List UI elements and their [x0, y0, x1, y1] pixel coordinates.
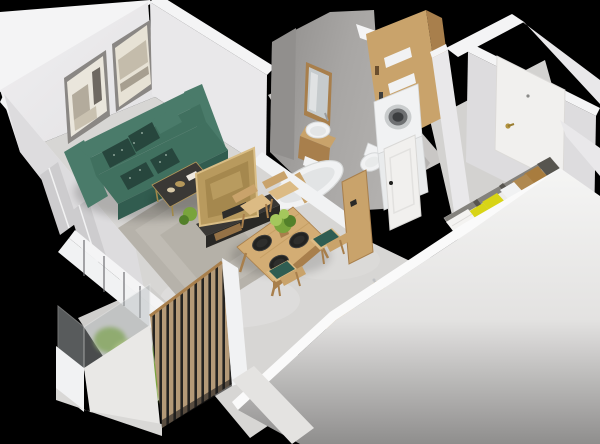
decor-bowl — [167, 188, 175, 193]
door-handle — [389, 181, 393, 185]
bathroom-door — [384, 135, 421, 230]
apartment-render — [0, 0, 600, 444]
bottle — [375, 66, 379, 75]
mirror — [304, 62, 332, 126]
washer-door-glass — [393, 112, 404, 122]
bathroom-wall-shade — [270, 28, 296, 160]
faucet — [373, 279, 376, 282]
plant — [179, 215, 189, 225]
peephole — [526, 94, 529, 97]
basin-inner — [310, 126, 326, 136]
table-leg — [172, 206, 173, 216]
decor-bowl — [175, 181, 185, 187]
